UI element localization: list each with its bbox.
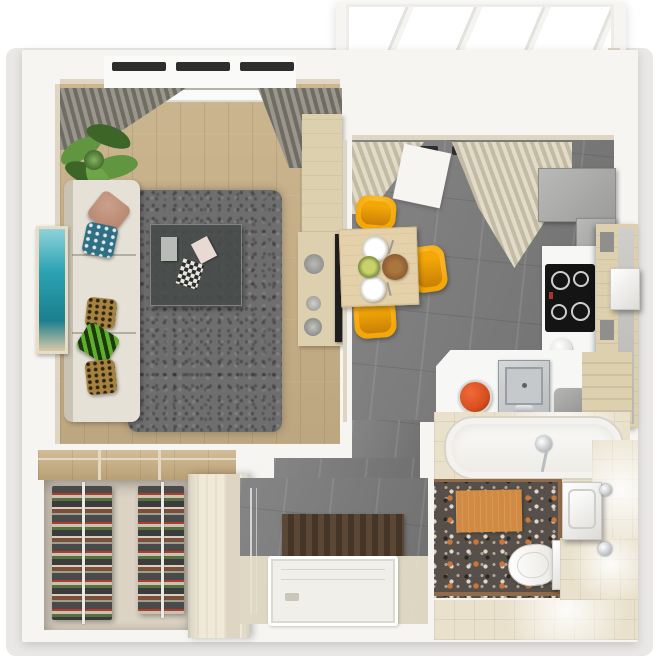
chair-seat <box>358 302 392 334</box>
tray-drain <box>285 593 299 601</box>
closet-rail <box>38 458 236 460</box>
living-window-pane <box>112 62 166 71</box>
bread-basket <box>382 254 408 280</box>
floor-plan-render <box>0 0 659 661</box>
burner <box>551 304 567 320</box>
table-magazine <box>191 236 217 264</box>
decor-flowers <box>304 254 324 274</box>
closet-rail <box>158 450 161 480</box>
tray-line <box>281 579 385 580</box>
chair-seat <box>360 200 392 227</box>
tomato-bowl <box>458 380 492 414</box>
cabinet-panel <box>600 232 614 252</box>
yellow-chair-top <box>355 194 398 231</box>
boiler <box>610 268 640 310</box>
steel-sink <box>498 360 550 420</box>
orange-bath-mat <box>456 489 523 532</box>
clothes-rack-right <box>138 486 184 614</box>
rack-pole <box>161 482 164 618</box>
floor-trim <box>434 592 562 596</box>
faucet-knob <box>600 484 612 496</box>
tray-line <box>281 569 385 570</box>
plant-center <box>84 150 104 170</box>
living-window-pane <box>176 62 230 71</box>
slatted-wood-mat <box>282 514 404 558</box>
toilet-seat-line <box>516 551 551 580</box>
table-book <box>161 237 177 261</box>
hall-floor <box>274 458 420 480</box>
clothes-rack-left <box>52 486 112 620</box>
sink-basin <box>568 489 596 529</box>
table-decor-checker <box>176 258 205 290</box>
pillow-leopard <box>84 359 117 396</box>
shower-tray <box>268 556 398 626</box>
decor-vase <box>304 318 322 336</box>
upper-cabinet-corner <box>538 168 616 222</box>
sink-drain <box>522 383 527 388</box>
balcony-glazing <box>346 4 614 54</box>
coffee-table <box>150 224 242 306</box>
salad-bowl <box>358 256 380 278</box>
closet-rail <box>98 450 101 480</box>
bathroom-wall-bottom <box>434 600 638 640</box>
teal-wall-art <box>36 226 68 354</box>
shower-wall-face-left <box>226 474 240 638</box>
kitchen-wall-face-top <box>352 135 614 140</box>
cooktop <box>545 264 595 332</box>
faucet-knob <box>598 542 612 556</box>
pillow-blue-pattern <box>81 221 119 259</box>
storage-cabinet <box>302 114 342 232</box>
rack-pole <box>82 482 85 624</box>
cooktop-control <box>549 292 553 299</box>
shower-head <box>536 436 552 452</box>
burner <box>573 271 589 287</box>
vanity-sink <box>562 482 602 540</box>
living-window-pane <box>240 62 294 71</box>
burner <box>571 302 590 321</box>
plate <box>360 276 386 302</box>
decor-vase <box>306 296 321 311</box>
cabinet-panel <box>600 320 614 340</box>
burner <box>551 271 570 290</box>
floor-trim <box>434 479 562 482</box>
